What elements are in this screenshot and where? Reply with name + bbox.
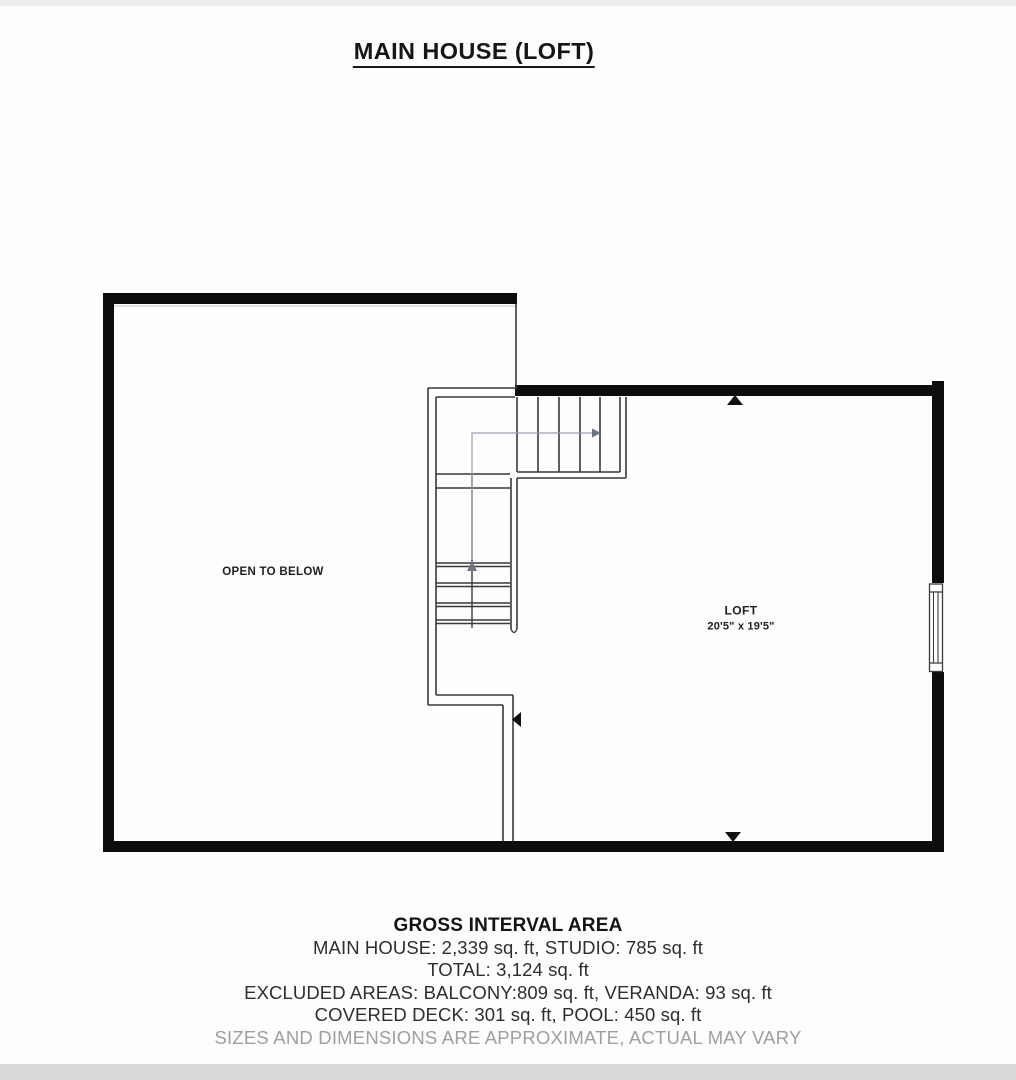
- wall-left: [103, 293, 114, 852]
- stair-wall-end-cap: [511, 629, 517, 633]
- area-summary-heading: GROSS INTERVAL AREA: [0, 914, 1016, 937]
- stair-direction-line: [472, 433, 592, 560]
- floor-plan-page: MAIN HOUSE (LOFT): [0, 0, 1016, 1080]
- loft-label-group: LOFT 20'5" x 19'5": [707, 604, 774, 635]
- area-summary: GROSS INTERVAL AREA MAIN HOUSE: 2,339 sq…: [0, 914, 1016, 1049]
- staircase-upper-risers: [517, 397, 620, 472]
- area-line-main-house-studio: MAIN HOUSE: 2,339 sq. ft, STUDIO: 785 sq…: [0, 937, 1016, 959]
- open-to-below-label: OPEN TO BELOW: [222, 566, 323, 578]
- wall-right-lower: [932, 672, 944, 852]
- wall-bottom: [103, 841, 944, 852]
- wall-top-left-room: [103, 293, 517, 304]
- loft-name-label: LOFT: [707, 604, 774, 620]
- window: [930, 584, 943, 672]
- loft-dimensions-label: 20'5" x 19'5": [707, 619, 774, 635]
- wall-right-upper: [932, 381, 944, 583]
- interior-thin-walls: [428, 304, 626, 841]
- bottom-edge-strip: [0, 1064, 1016, 1080]
- area-line-total: TOTAL: 3,124 sq. ft: [0, 959, 1016, 981]
- staircase-lower-treads: [436, 474, 510, 628]
- area-line-deck-pool: COVERED DECK: 301 sq. ft, POOL: 450 sq. …: [0, 1004, 1016, 1026]
- bottom-wall-marker-icon: [725, 832, 741, 842]
- window-glass: [934, 592, 939, 663]
- top-wall-marker-icon: [727, 395, 743, 405]
- wall-top-loft: [515, 385, 944, 396]
- disclaimer-text: SIZES AND DIMENSIONS ARE APPROXIMATE, AC…: [0, 1027, 1016, 1049]
- area-line-excluded: EXCLUDED AREAS: BALCONY:809 sq. ft, VERA…: [0, 982, 1016, 1004]
